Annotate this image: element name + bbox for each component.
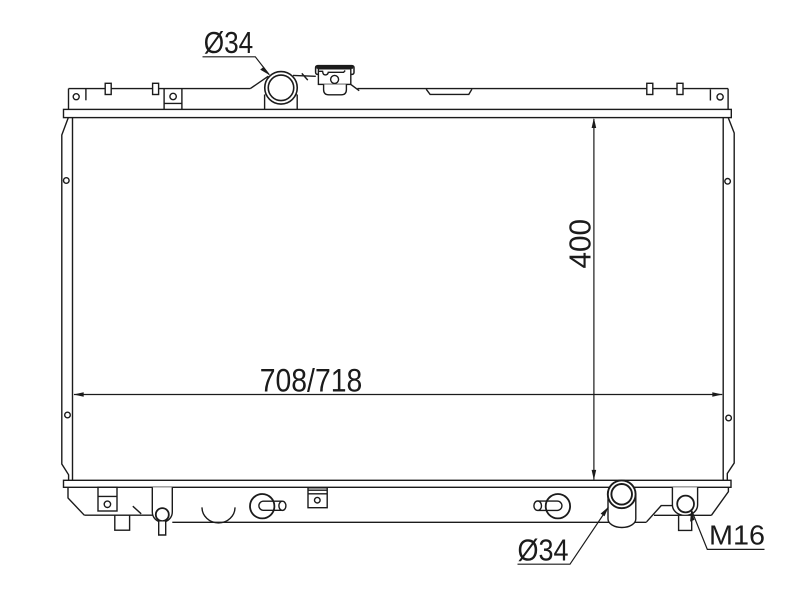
- svg-text:Ø34: Ø34: [518, 534, 569, 568]
- svg-text:Ø34: Ø34: [204, 26, 254, 60]
- svg-text:M16: M16: [709, 520, 765, 551]
- svg-text:400: 400: [563, 219, 598, 268]
- svg-text:708/718: 708/718: [260, 363, 363, 399]
